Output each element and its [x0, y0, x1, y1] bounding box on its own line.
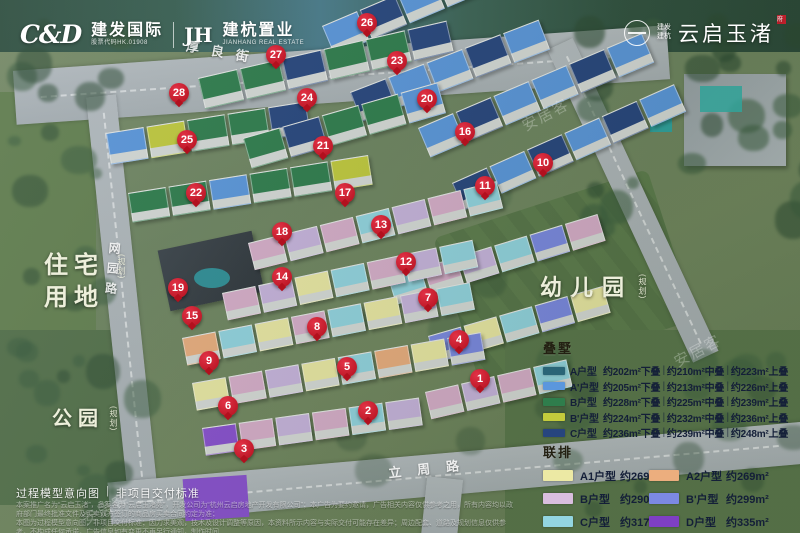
area-label-text: 公园 [52, 402, 104, 431]
building-roof [327, 303, 366, 337]
legend-unit-label: B户型 [570, 394, 603, 409]
building-roof [265, 364, 303, 397]
screenshot-root: 1234567891011121314151617181920212223242… [0, 0, 800, 533]
disclaimer-line: 本案推广名为“云启玉渚”，备案名为“云启玉渚苑”，开发公司为“杭州云启房地产开发… [16, 501, 516, 519]
legend-townhouse-title: 联排 [543, 442, 799, 461]
building-roof [222, 286, 261, 320]
developer-mini-names: 建发 建杭 [657, 24, 671, 42]
legend-stack-row: B'户型约224m²下叠|约232m²中叠|约236m²上叠 [543, 410, 799, 426]
legend-swatch [543, 493, 573, 504]
legend-swatch [649, 470, 679, 481]
legend-separator: | [726, 412, 729, 423]
tree [574, 16, 605, 49]
legend-stack-row: C户型约236m²下叠|约239m²中叠|约248m²上叠 [543, 425, 799, 441]
legend-area-spec: 约239m²中叠 [667, 425, 724, 440]
project-name: 云启玉渚 府 [678, 18, 784, 48]
footer-disclaimer: 本案推广名为“云启玉渚”，备案名为“云启玉渚苑”，开发公司为“杭州云启房地产开发… [16, 501, 516, 533]
building-marker-6[interactable]: 6 [218, 396, 238, 416]
building-roof [275, 413, 313, 445]
legend-separator: | [726, 427, 729, 438]
area-label-note: (规划) [637, 274, 648, 299]
jh-brand-subtitle: JIANHANG REAL ESTATE [223, 40, 305, 47]
caption-right: 非项目交付标准 [116, 485, 200, 501]
tree [73, 355, 86, 366]
legend-town-grid: A1户型约269m²A2户型约269m²B户型约290m²B'户型约299m²C… [543, 467, 799, 530]
legend-swatch [543, 382, 565, 390]
project-name-seal: 府 [777, 15, 786, 24]
tree [738, 125, 769, 151]
legend-area-spec: 约213m²中叠 [667, 379, 724, 394]
legend-town-item: B户型约290m² [543, 490, 649, 507]
tree [456, 427, 485, 455]
legend-stack-row: A'户型约205m²下叠|约213m²中叠|约226m²上叠 [543, 379, 799, 395]
building-marker-1[interactable]: 1 [470, 369, 490, 389]
tree [23, 268, 40, 285]
building-roof [209, 174, 251, 210]
disclaimer-line: 本图为过程模型意向图，非项目交付标准；因力求美观，技术及设计调整等原因，本资料所… [16, 519, 516, 533]
jh-logo: JH [184, 23, 212, 47]
legend-separator: | [662, 365, 665, 376]
building-marker-14[interactable]: 14 [272, 267, 292, 287]
legend-unit-label: A'户型 [570, 379, 603, 394]
building-roof [320, 217, 360, 252]
tree [16, 342, 38, 362]
building-marker-19[interactable]: 19 [168, 278, 188, 298]
building-marker-11[interactable]: 11 [475, 176, 495, 196]
building-marker-7[interactable]: 7 [418, 288, 438, 308]
legend-area-spec: 约202m²下叠 [603, 363, 660, 378]
legend-area-spec: 约223m²上叠 [731, 363, 788, 378]
legend-town-item: B'户型约299m² [649, 490, 799, 507]
building-marker-3[interactable]: 3 [234, 439, 254, 459]
building-marker-9[interactable]: 9 [199, 351, 219, 371]
tree [785, 23, 800, 48]
tree [8, 136, 21, 146]
building-roof [249, 168, 291, 204]
area-label-park: 公园 (规划) [52, 402, 119, 431]
legend-separator: | [726, 365, 729, 376]
legend-area-spec: 约225m²中叠 [667, 394, 724, 409]
tree [38, 84, 58, 101]
cd-logo: C&D [20, 20, 81, 49]
legend-unit-label: D户型 [686, 514, 726, 530]
tree [773, 94, 800, 118]
legend-swatch [543, 413, 565, 421]
building-roof [374, 345, 412, 378]
caption-left: 过程模型意向图 [16, 485, 100, 501]
legend-separator: | [726, 396, 729, 407]
building-marker-23[interactable]: 23 [387, 51, 407, 71]
building-roof [364, 296, 403, 330]
legend-area-spec: 约269m² [726, 468, 769, 484]
area-label-residential: 住宅用地 (规划) [44, 250, 127, 315]
tree [26, 445, 47, 463]
building-roof [218, 324, 257, 358]
legend-unit-label: B户型 [580, 491, 620, 507]
legend-area-spec: 约228m²下叠 [603, 394, 660, 409]
legend-separator: | [662, 427, 665, 438]
legend-unit-label: C户型 [570, 425, 603, 440]
building-marker-25[interactable]: 25 [177, 130, 197, 150]
cd-brand-name: 建发国际 [91, 22, 163, 40]
legend-swatch [543, 429, 565, 437]
tree [19, 370, 39, 388]
tree [12, 175, 48, 208]
legend-area-spec: 约205m²下叠 [603, 379, 660, 394]
building-marker-8[interactable]: 8 [307, 317, 327, 337]
tree [124, 380, 160, 418]
header-brand-right: 建发 建杭 云启玉渚 府 [624, 18, 784, 48]
building-roof [639, 84, 686, 127]
area-label-note: (规划) [116, 254, 127, 279]
footer-caption: 过程模型意向图 | 非项目交付标准 [16, 485, 200, 501]
legend-stack-row: A户型约202m²下叠|约210m²中叠|约223m²上叠 [543, 363, 799, 379]
building-marker-21[interactable]: 21 [313, 136, 333, 156]
cd-brand-subtitle: 股票代码HK.01908 [91, 40, 163, 47]
area-label-note: (规划) [108, 406, 119, 431]
tree [701, 113, 724, 137]
legend-unit-label: B'户型 [570, 410, 603, 425]
building-roof [255, 317, 294, 351]
project-logo-icon [624, 20, 650, 46]
project-name-text: 云启玉渚 [678, 22, 774, 46]
developer-mini-top: 建发 [657, 24, 671, 33]
legend-swatch [543, 470, 573, 481]
legend-area-spec: 约236m²下叠 [603, 425, 660, 440]
tree [627, 177, 639, 188]
legend-unit-label: A户型 [570, 363, 603, 378]
building-marker-13[interactable]: 13 [371, 215, 391, 235]
building-roof [128, 187, 170, 223]
building-marker-26[interactable]: 26 [357, 13, 377, 33]
developer-mini-bottom: 建杭 [657, 33, 671, 42]
building-marker-2[interactable]: 2 [358, 401, 378, 421]
building-marker-18[interactable]: 18 [272, 222, 292, 242]
legend-town-item: A1户型约269m² [543, 467, 649, 484]
building-marker-20[interactable]: 20 [417, 89, 437, 109]
building-roof [106, 127, 149, 165]
area-label-kindergarten: 幼儿园 (规划) [540, 270, 648, 302]
legend-swatch [543, 516, 573, 527]
jh-brand-name: 建杭置业 [223, 22, 305, 40]
building-marker-5[interactable]: 5 [337, 357, 357, 377]
tree [587, 182, 604, 198]
header-brand-left: C&D 建发国际 股票代码HK.01908 JH 建杭置业 JIANHANG R… [20, 20, 304, 49]
legend-separator: | [662, 381, 665, 392]
building-marker-15[interactable]: 15 [182, 306, 202, 326]
cd-brand-block: 建发国际 股票代码HK.01908 [91, 22, 163, 47]
legend-area-spec: 约335m² [726, 514, 769, 530]
building-roof [411, 339, 449, 372]
legend-swatch [543, 367, 565, 375]
building-marker-4[interactable]: 4 [449, 330, 469, 350]
legend-town-item: A2户型约269m² [649, 467, 799, 484]
legend-area-spec: 约299m² [726, 491, 769, 507]
legend-area-spec: 约239m²上叠 [731, 394, 788, 409]
teal-roof-patch [700, 86, 742, 112]
building-marker-17[interactable]: 17 [335, 183, 355, 203]
tree [75, 82, 105, 111]
building-marker-24[interactable]: 24 [297, 88, 317, 108]
legend-area-spec: 约232m²中叠 [667, 410, 724, 425]
landscape-pond [194, 268, 230, 288]
tree [16, 46, 52, 83]
legend-stack-rows: A户型约202m²下叠|约210m²中叠|约223m²上叠A'户型约205m²下… [543, 363, 799, 441]
building-marker-10[interactable]: 10 [533, 153, 553, 173]
tree [773, 121, 791, 139]
legend-separator: | [662, 412, 665, 423]
legend-area-spec: 约236m²上叠 [731, 410, 788, 425]
legend-unit-label: A2户型 [686, 468, 726, 484]
building-roof [428, 190, 468, 225]
area-label-text: 幼儿园 [540, 270, 633, 302]
legend-stack-row: B户型约228m²下叠|约225m²中叠|约239m²上叠 [543, 394, 799, 410]
building-roof [290, 161, 332, 197]
area-label-text: 住宅用地 [44, 250, 112, 315]
jh-brand-block: 建杭置业 JIANHANG REAL ESTATE [223, 22, 305, 47]
legend-area-spec: 约248m²上叠 [731, 425, 788, 440]
tree [86, 354, 119, 390]
tree [57, 370, 70, 383]
building-marker-28[interactable]: 28 [169, 83, 189, 103]
tree [678, 153, 706, 175]
header-divider [173, 22, 174, 48]
tree [685, 55, 720, 81]
legend-townhouse: 联排 A1户型约269m²A2户型约269m²B户型约290m²B'户型约299… [543, 442, 799, 530]
legend-unit-label: B'户型 [686, 491, 726, 507]
legend-unit-label: C户型 [580, 514, 620, 530]
legend-swatch [543, 398, 565, 406]
tree [776, 61, 791, 76]
legend-town-item: D户型约335m² [649, 513, 799, 530]
tree [41, 124, 59, 141]
legend-swatch [649, 493, 679, 504]
building-roof [425, 384, 464, 419]
legend-separator: | [662, 396, 665, 407]
building-roof [385, 398, 423, 430]
legend-town-item: C户型约317m² [543, 513, 649, 530]
building-marker-22[interactable]: 22 [186, 183, 206, 203]
legend-swatch [649, 516, 679, 527]
building-marker-12[interactable]: 12 [396, 252, 416, 272]
legend-area-spec: 约210m²中叠 [667, 363, 724, 378]
building-roof [392, 199, 432, 234]
building-roof [301, 358, 339, 391]
building-roof [331, 263, 370, 297]
building-roof [294, 271, 333, 305]
legend-area-spec: 约226m²上叠 [731, 379, 788, 394]
legend-separator: | [726, 381, 729, 392]
legend-stacked-villa: 叠墅 A户型约202m²下叠|约210m²中叠|约223m²上叠A'户型约205… [543, 338, 799, 441]
building-roof [312, 408, 350, 440]
legend-unit-label: A1户型 [580, 468, 620, 484]
caption-separator: | [106, 485, 110, 501]
building-marker-16[interactable]: 16 [455, 122, 475, 142]
legend-stacked-title: 叠墅 [543, 338, 799, 357]
tree [355, 454, 393, 487]
legend-area-spec: 约224m²下叠 [603, 410, 660, 425]
